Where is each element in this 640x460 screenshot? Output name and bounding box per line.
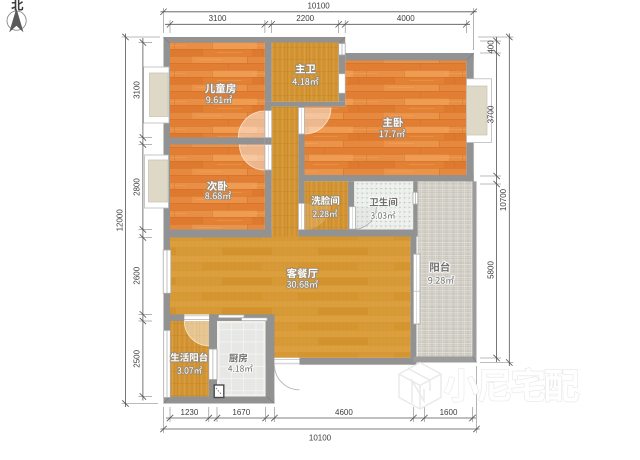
svg-text:2200: 2200 [296,14,314,23]
svg-text:10700: 10700 [499,188,508,211]
svg-text:1670: 1670 [232,408,250,417]
svg-text:4000: 4000 [397,14,415,23]
svg-text:400: 400 [486,40,495,54]
svg-text:3700: 3700 [486,105,495,123]
svg-text:10100: 10100 [307,1,330,10]
svg-text:12000: 12000 [115,209,124,232]
svg-text:1230: 1230 [181,408,199,417]
svg-text:2600: 2600 [133,266,142,284]
svg-text:3100: 3100 [133,81,142,99]
svg-text:2500: 2500 [133,349,142,367]
svg-text:5800: 5800 [486,261,495,279]
svg-text:1600: 1600 [440,408,458,417]
svg-text:3100: 3100 [209,14,227,23]
svg-text:2800: 2800 [133,178,142,196]
svg-text:4600: 4600 [335,408,353,417]
svg-text:10100: 10100 [309,434,332,443]
